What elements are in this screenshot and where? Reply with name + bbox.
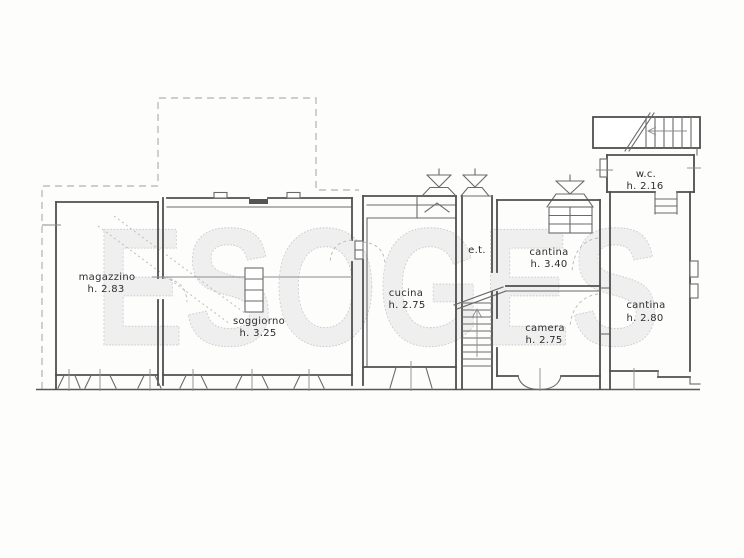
room-label-camera: camera — [525, 323, 565, 334]
floor-plan-drawing: ESOGES — [0, 0, 744, 558]
staircase-top-right — [593, 113, 700, 155]
room-label-magazzino: magazzino — [79, 272, 136, 283]
room-label-cucina: cucina — [389, 288, 423, 299]
room-height-cucina: h. 2.75 — [388, 300, 425, 311]
room-height-soggiorno: h. 3.25 — [239, 328, 276, 339]
room-label-cantina-280: cantina — [626, 300, 665, 311]
room-height-cantina-280: h. 2.80 — [626, 313, 663, 324]
room-label-soggiorno: soggiorno — [233, 316, 285, 327]
room-label-wc: w.c. — [636, 169, 656, 180]
room-height-magazzino: h. 2.83 — [87, 284, 124, 295]
room-height-camera: h. 2.75 — [525, 335, 562, 346]
room-label-cantina-340: cantina — [529, 247, 568, 258]
room-label-et: e.t. — [468, 245, 486, 256]
room-height-cantina-340: h. 3.40 — [530, 259, 567, 270]
floor-plan-page: ESOGES — [0, 0, 744, 558]
room-height-wc: h. 2.16 — [626, 181, 663, 192]
